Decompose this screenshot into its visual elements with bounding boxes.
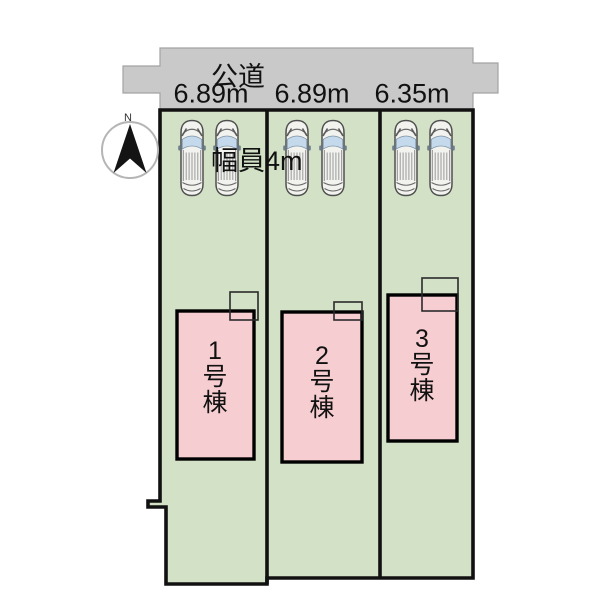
building-2-label: 2号棟	[307, 343, 337, 421]
north-arrow-icon	[114, 124, 147, 173]
lot-1-frontage-label: 6.89m	[173, 79, 248, 110]
north-label: N	[124, 112, 132, 124]
road-label: 公道 幅員4m	[211, 7, 303, 231]
building-3-label: 3号棟	[407, 326, 437, 404]
car-icon	[427, 121, 455, 196]
road-width-text: 幅員4m	[211, 147, 303, 175]
car-icon	[392, 121, 420, 196]
car-icon	[319, 121, 347, 196]
lot-3-frontage-label: 6.35m	[374, 79, 449, 110]
site-plan: N 公道 幅員4m 6.89m 6.89m 6.35m 1号棟 2号棟 3号棟	[0, 0, 600, 600]
lot-2-frontage-label: 6.89m	[274, 79, 349, 110]
car-icon	[178, 121, 206, 196]
building-1-label: 1号棟	[200, 338, 230, 416]
